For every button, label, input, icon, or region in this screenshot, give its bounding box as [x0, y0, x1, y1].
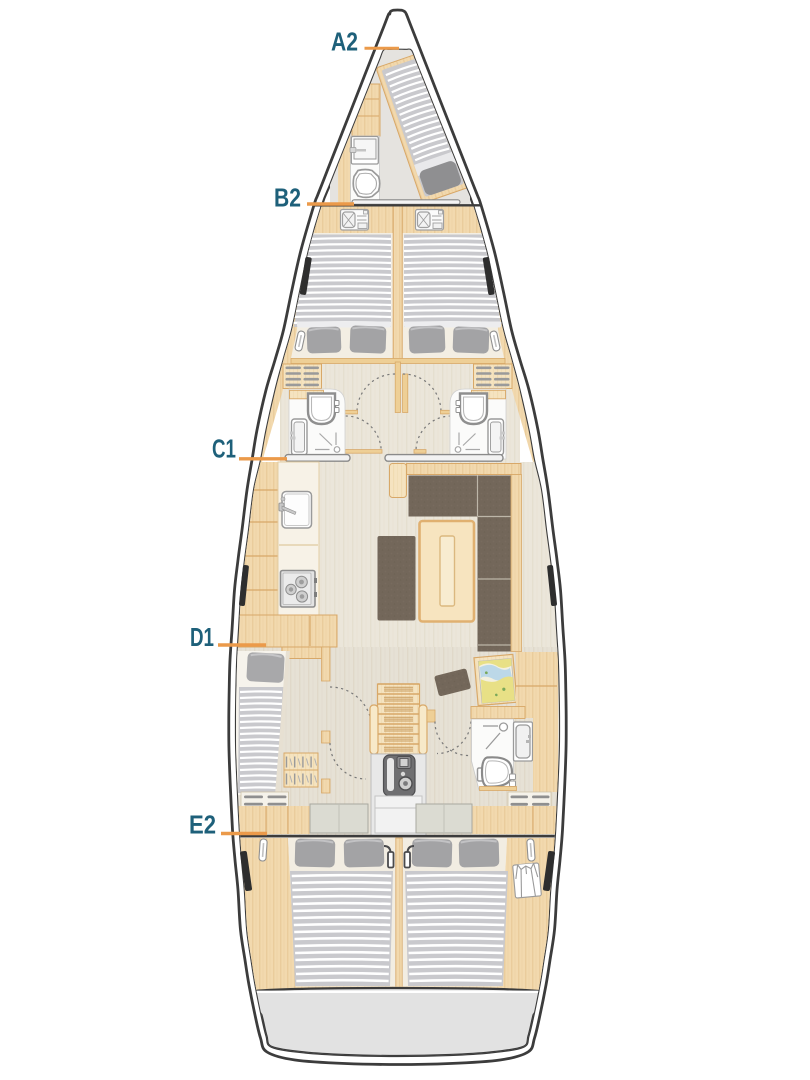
- svg-text:E2: E2: [189, 810, 216, 840]
- svg-text:B2: B2: [274, 183, 301, 213]
- svg-text:D1: D1: [190, 622, 214, 652]
- svg-text:A2: A2: [331, 27, 358, 57]
- svg-text:C1: C1: [212, 434, 236, 464]
